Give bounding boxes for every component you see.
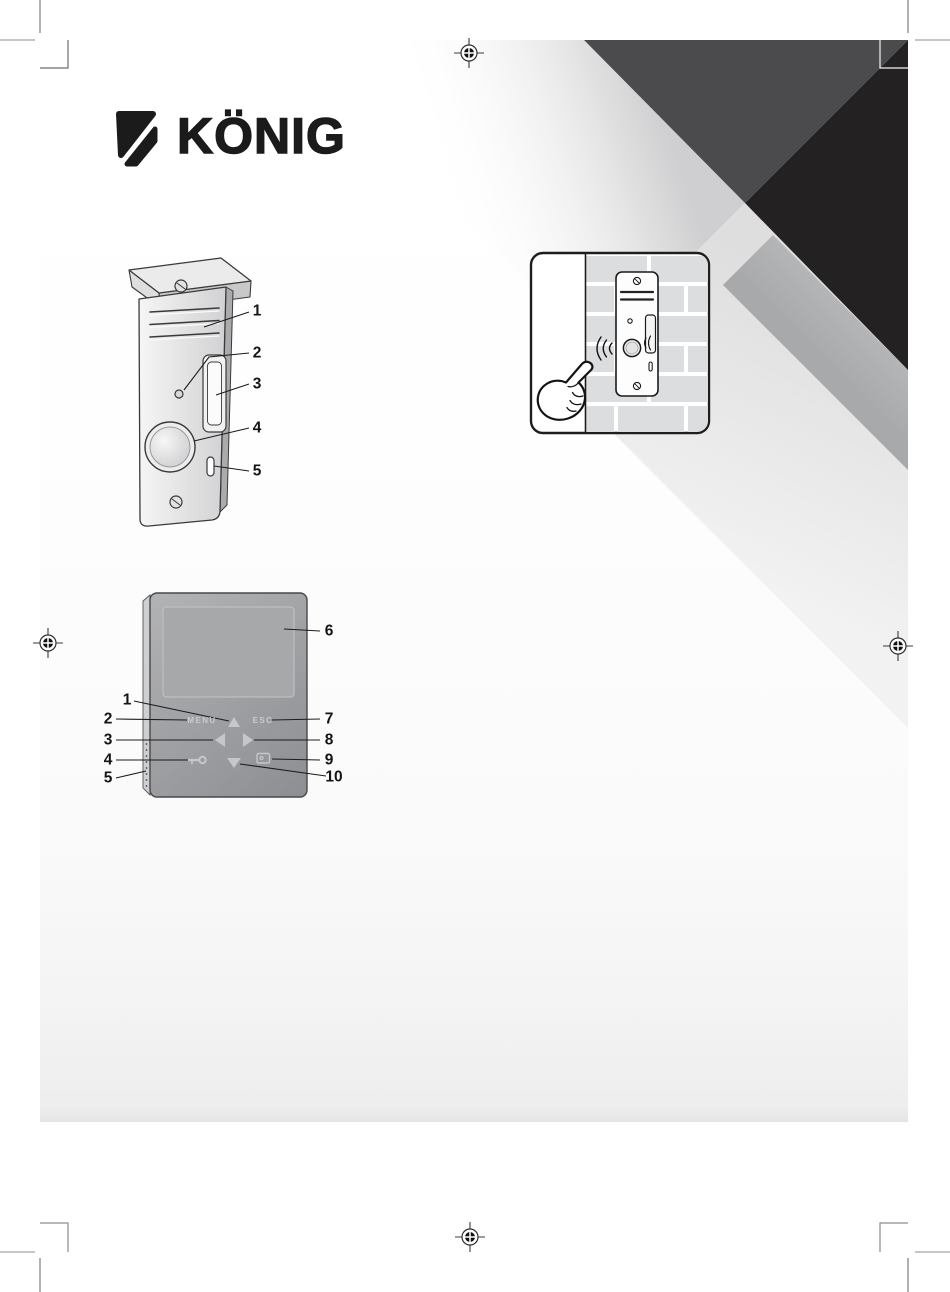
monitor-callout-6: 6 xyxy=(325,623,334,639)
speaker-slot xyxy=(207,457,214,476)
konig-logo-icon xyxy=(113,108,160,168)
registration-target-icon xyxy=(455,1222,485,1252)
door-callout-3: 3 xyxy=(253,376,262,392)
name-card-slot xyxy=(646,315,656,353)
monitor-callout-1: 1 xyxy=(123,692,132,708)
brand-logo-text: KÖNIG xyxy=(177,111,346,161)
door-callout-5: 5 xyxy=(253,463,262,479)
esc-button-label: ESC xyxy=(253,717,274,725)
doorbell-illustration xyxy=(531,253,709,433)
door-callout-4: 4 xyxy=(253,420,262,436)
monitor-callout-7: 7 xyxy=(325,711,334,727)
corner-design-artwork xyxy=(0,0,950,1292)
doorbell-unit xyxy=(616,272,658,396)
manual-page: KÖNIG 1 2 3 4 5 1 2 3 4 5 6 7 8 9 10 MEN… xyxy=(0,0,950,1292)
monitor-screen xyxy=(163,607,294,697)
monitor-callout-8: 8 xyxy=(325,732,334,748)
monitor-callout-2: 2 xyxy=(104,711,113,727)
door-callout-2: 2 xyxy=(253,345,262,361)
monitor-callout-10: 10 xyxy=(325,769,342,785)
monitor-callout-5: 5 xyxy=(104,770,113,786)
monitor-callout-4: 4 xyxy=(104,752,113,768)
monitor-drawing xyxy=(143,593,307,797)
monitor-callout-3: 3 xyxy=(104,732,113,748)
monitor-callout-9: 9 xyxy=(325,752,334,768)
microphone-hole xyxy=(175,390,183,398)
door-callout-1: 1 xyxy=(253,303,262,319)
menu-button-label: MENU xyxy=(187,717,216,725)
